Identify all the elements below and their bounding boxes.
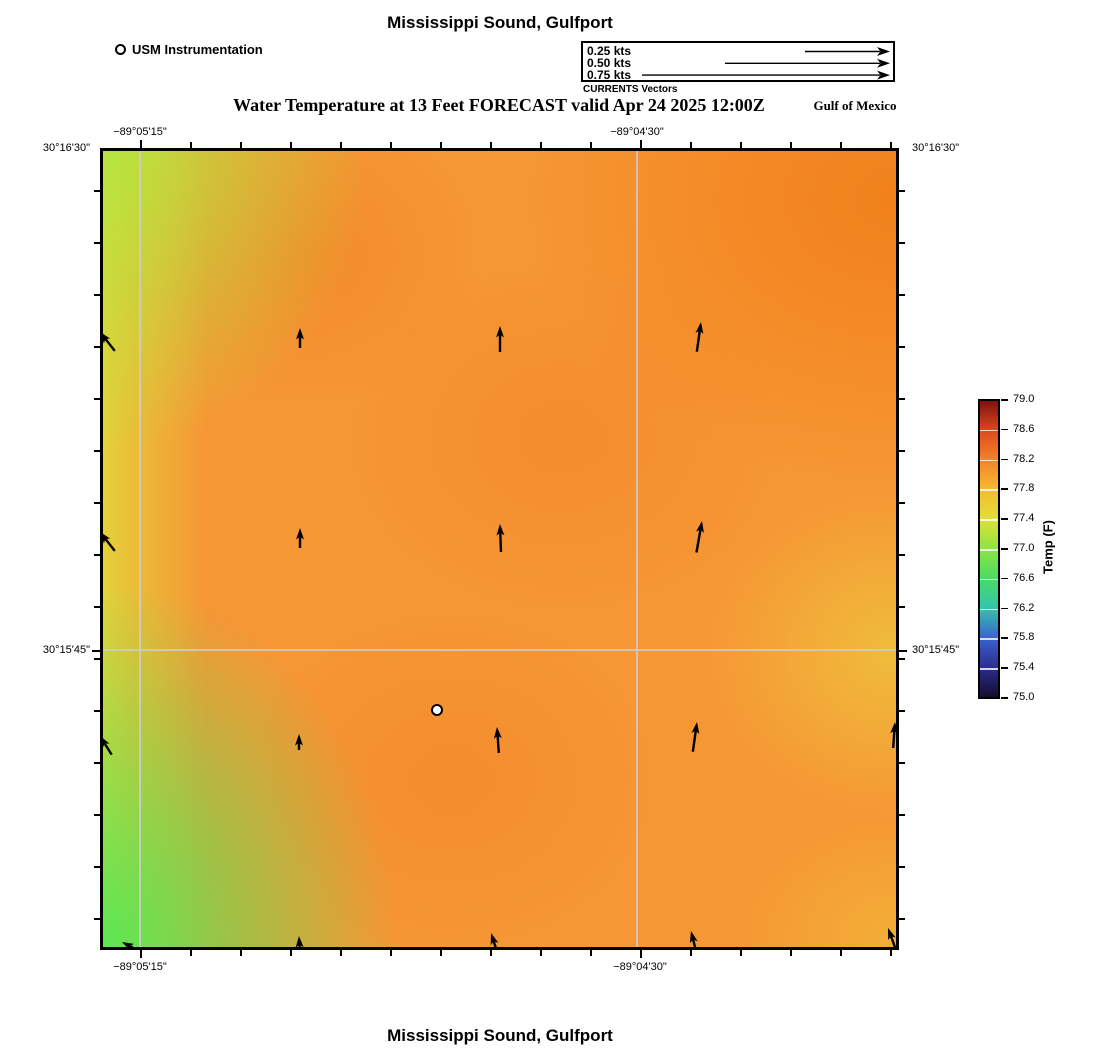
page-root: Mississippi Sound, Gulfport USM Instrume…: [0, 0, 1100, 1050]
colorbar-tick-label: 79.0: [1013, 393, 1034, 405]
colorbar-tick-label: 75.0: [1013, 691, 1034, 703]
axis-tick: [440, 142, 442, 148]
axis-tick: [899, 554, 905, 556]
current-vector-arrow: [292, 936, 307, 950]
axis-tick: [690, 142, 692, 148]
colorbar-tick: [1001, 637, 1008, 639]
station-marker: [431, 704, 443, 716]
axis-tick: [340, 142, 342, 148]
axis-tick: [790, 142, 792, 148]
axis-tick: [899, 606, 905, 608]
axis-tick: [740, 950, 742, 956]
axis-tick: [640, 140, 642, 148]
currents-caption: CURRENTS Vectors: [583, 84, 677, 95]
axis-tick: [340, 950, 342, 956]
current-vector-arrow: [881, 926, 899, 950]
grid-line-horizontal: [103, 649, 896, 651]
grid-line-vertical: [636, 151, 638, 947]
current-vector-arrow: [292, 734, 306, 757]
axis-tick: [899, 814, 905, 816]
axis-label-top: −89°04'30": [577, 126, 697, 138]
axis-tick: [840, 950, 842, 956]
axis-tick: [899, 242, 905, 244]
axis-label-right: 30°16'30": [912, 142, 1002, 154]
axis-tick: [94, 606, 100, 608]
axis-tick: [740, 142, 742, 148]
axis-tick: [290, 142, 292, 148]
axis-tick: [690, 950, 692, 956]
axis-tick: [899, 762, 905, 764]
axis-tick: [899, 658, 905, 660]
colorbar-tick-label: 77.8: [1013, 482, 1034, 494]
axis-label-bottom: −89°05'15": [80, 961, 200, 973]
currents-legend-arrows: [583, 43, 893, 80]
colorbar-gridline: [980, 668, 998, 670]
axis-tick: [899, 710, 905, 712]
colorbar-tick: [1001, 488, 1008, 490]
axis-tick: [140, 950, 142, 958]
temperature-heatmap: [100, 148, 899, 950]
current-vector-arrow: [119, 936, 148, 950]
current-vector-arrow: [684, 929, 706, 950]
axis-label-left: 30°15'45": [8, 644, 90, 656]
currents-legend: 0.25 kts0.50 kts0.75 kts: [581, 41, 895, 82]
axis-tick: [899, 866, 905, 868]
axis-tick: [94, 450, 100, 452]
current-vector-arrow: [100, 528, 125, 561]
axis-tick: [890, 142, 892, 148]
colorbar-tick: [1001, 667, 1008, 669]
colorbar-gridline: [980, 460, 998, 462]
colorbar-tick-label: 75.8: [1013, 631, 1034, 643]
colorbar-gridline: [980, 579, 998, 581]
current-vector-arrow: [493, 524, 508, 559]
colorbar-tick: [1001, 518, 1008, 520]
colorbar-tick-label: 77.0: [1013, 542, 1034, 554]
colorbar-tick-label: 76.6: [1013, 572, 1034, 584]
axis-tick: [440, 950, 442, 956]
axis-tick: [240, 950, 242, 956]
colorbar-gridline: [980, 549, 998, 551]
axis-tick: [840, 142, 842, 148]
colorbar-tick: [1001, 697, 1008, 699]
axis-tick: [94, 190, 100, 192]
colorbar-tick: [1001, 429, 1008, 431]
colorbar-gridline: [980, 489, 998, 491]
axis-tick: [94, 814, 100, 816]
axis-tick: [899, 918, 905, 920]
current-vector-arrow: [886, 722, 899, 756]
map-title-top: Mississippi Sound, Gulfport: [100, 13, 900, 33]
axis-tick: [140, 140, 142, 148]
colorbar-gridline: [980, 430, 998, 432]
colorbar-tick: [1001, 548, 1008, 550]
colorbar-tick: [1001, 459, 1008, 461]
axis-tick: [899, 398, 905, 400]
axis-tick: [899, 502, 905, 504]
axis-tick: [190, 950, 192, 956]
axis-tick: [94, 242, 100, 244]
current-vector-arrow: [688, 520, 709, 561]
axis-tick: [94, 346, 100, 348]
grid-line-vertical: [139, 151, 141, 947]
axis-tick: [190, 142, 192, 148]
colorbar-tick-label: 75.4: [1013, 661, 1034, 673]
axis-tick: [240, 142, 242, 148]
axis-tick: [290, 950, 292, 956]
axis-tick: [92, 650, 100, 652]
axis-tick: [899, 650, 907, 652]
current-vector-arrow: [689, 321, 708, 360]
axis-tick: [640, 950, 642, 958]
axis-tick: [94, 918, 100, 920]
axis-tick: [490, 950, 492, 956]
current-vector-arrow: [490, 727, 506, 761]
axis-tick: [94, 398, 100, 400]
axis-tick: [540, 142, 542, 148]
current-vector-arrow: [685, 721, 704, 760]
colorbar-tick: [1001, 578, 1008, 580]
colorbar-tick-label: 78.6: [1013, 423, 1034, 435]
axis-tick: [890, 950, 892, 956]
current-vector-arrow: [493, 326, 507, 359]
axis-tick: [94, 294, 100, 296]
colorbar-tick-label: 78.2: [1013, 453, 1034, 465]
axis-label-bottom: −89°04'30": [580, 961, 700, 973]
colorbar-gridline: [980, 519, 998, 521]
colorbar-tick-label: 77.4: [1013, 512, 1034, 524]
axis-label-left: 30°16'30": [8, 142, 90, 154]
colorbar-tick-label: 76.2: [1013, 602, 1034, 614]
axis-tick: [390, 142, 392, 148]
axis-tick: [94, 502, 100, 504]
gulf-of-mexico-label: Gulf of Mexico: [805, 98, 905, 114]
axis-tick: [590, 142, 592, 148]
current-vector-arrow: [484, 931, 507, 950]
axis-tick: [540, 950, 542, 956]
axis-label-top: −89°05'15": [80, 126, 200, 138]
colorbar-axis-label: Temp (F): [1041, 520, 1056, 574]
station-legend: USM Instrumentation: [115, 42, 263, 57]
axis-tick: [94, 762, 100, 764]
axis-tick: [94, 866, 100, 868]
map-title-bottom: Mississippi Sound, Gulfport: [100, 1026, 900, 1046]
current-vector-arrow: [100, 328, 125, 361]
current-vector-arrow: [293, 328, 307, 355]
colorbar-gridline: [980, 638, 998, 640]
colorbar-tick: [1001, 608, 1008, 610]
axis-tick: [899, 346, 905, 348]
axis-tick: [899, 294, 905, 296]
axis-tick: [390, 950, 392, 956]
axis-tick: [94, 554, 100, 556]
station-legend-icon: [115, 44, 126, 55]
axis-tick: [790, 950, 792, 956]
axis-tick: [94, 658, 100, 660]
current-vector-arrow: [293, 528, 307, 555]
colorbar-gridline: [980, 609, 998, 611]
axis-label-right: 30°15'45": [912, 644, 1002, 656]
station-legend-label: USM Instrumentation: [132, 42, 263, 57]
axis-tick: [899, 450, 905, 452]
axis-tick: [590, 950, 592, 956]
axis-tick: [94, 710, 100, 712]
axis-tick: [899, 190, 905, 192]
forecast-subtitle: Water Temperature at 13 Feet FORECAST va…: [99, 95, 899, 116]
axis-tick: [490, 142, 492, 148]
colorbar-tick: [1001, 399, 1008, 401]
current-vector-arrow: [100, 732, 121, 764]
